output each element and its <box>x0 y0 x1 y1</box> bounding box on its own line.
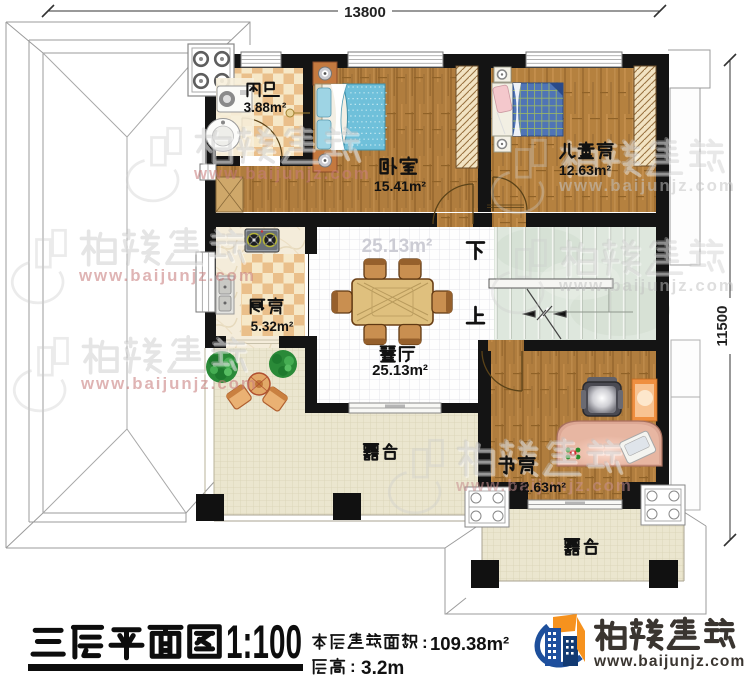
svg-text:www.baijunjz.com: www.baijunjz.com <box>80 374 258 393</box>
svg-text:15.41m²: 15.41m² <box>374 178 426 194</box>
svg-text:25.13m²: 25.13m² <box>372 362 428 379</box>
svg-text:www.baijunjz.com: www.baijunjz.com <box>558 276 736 295</box>
svg-text::: : <box>350 657 356 676</box>
svg-text:3.88m²: 3.88m² <box>244 100 287 115</box>
svg-text:www.baijunjz.com: www.baijunjz.com <box>593 653 745 670</box>
svg-text:11500: 11500 <box>714 306 731 347</box>
svg-text:www.baijunjz.com: www.baijunjz.com <box>193 164 371 183</box>
svg-text:13800: 13800 <box>344 4 386 21</box>
svg-text:12.63m²: 12.63m² <box>559 162 611 178</box>
svg-text:1:100: 1:100 <box>226 615 302 668</box>
svg-text:www.baijunjz.com: www.baijunjz.com <box>558 176 736 195</box>
svg-text:3.2m: 3.2m <box>361 658 404 679</box>
svg-text:12.63m²: 12.63m² <box>514 479 566 495</box>
svg-text:5.32m²: 5.32m² <box>251 319 294 334</box>
svg-text:109.38m²: 109.38m² <box>430 633 509 654</box>
svg-text:25.13m²: 25.13m² <box>362 236 433 257</box>
svg-text:www.baijunjz.com: www.baijunjz.com <box>78 266 256 285</box>
svg-text::: : <box>422 633 428 652</box>
